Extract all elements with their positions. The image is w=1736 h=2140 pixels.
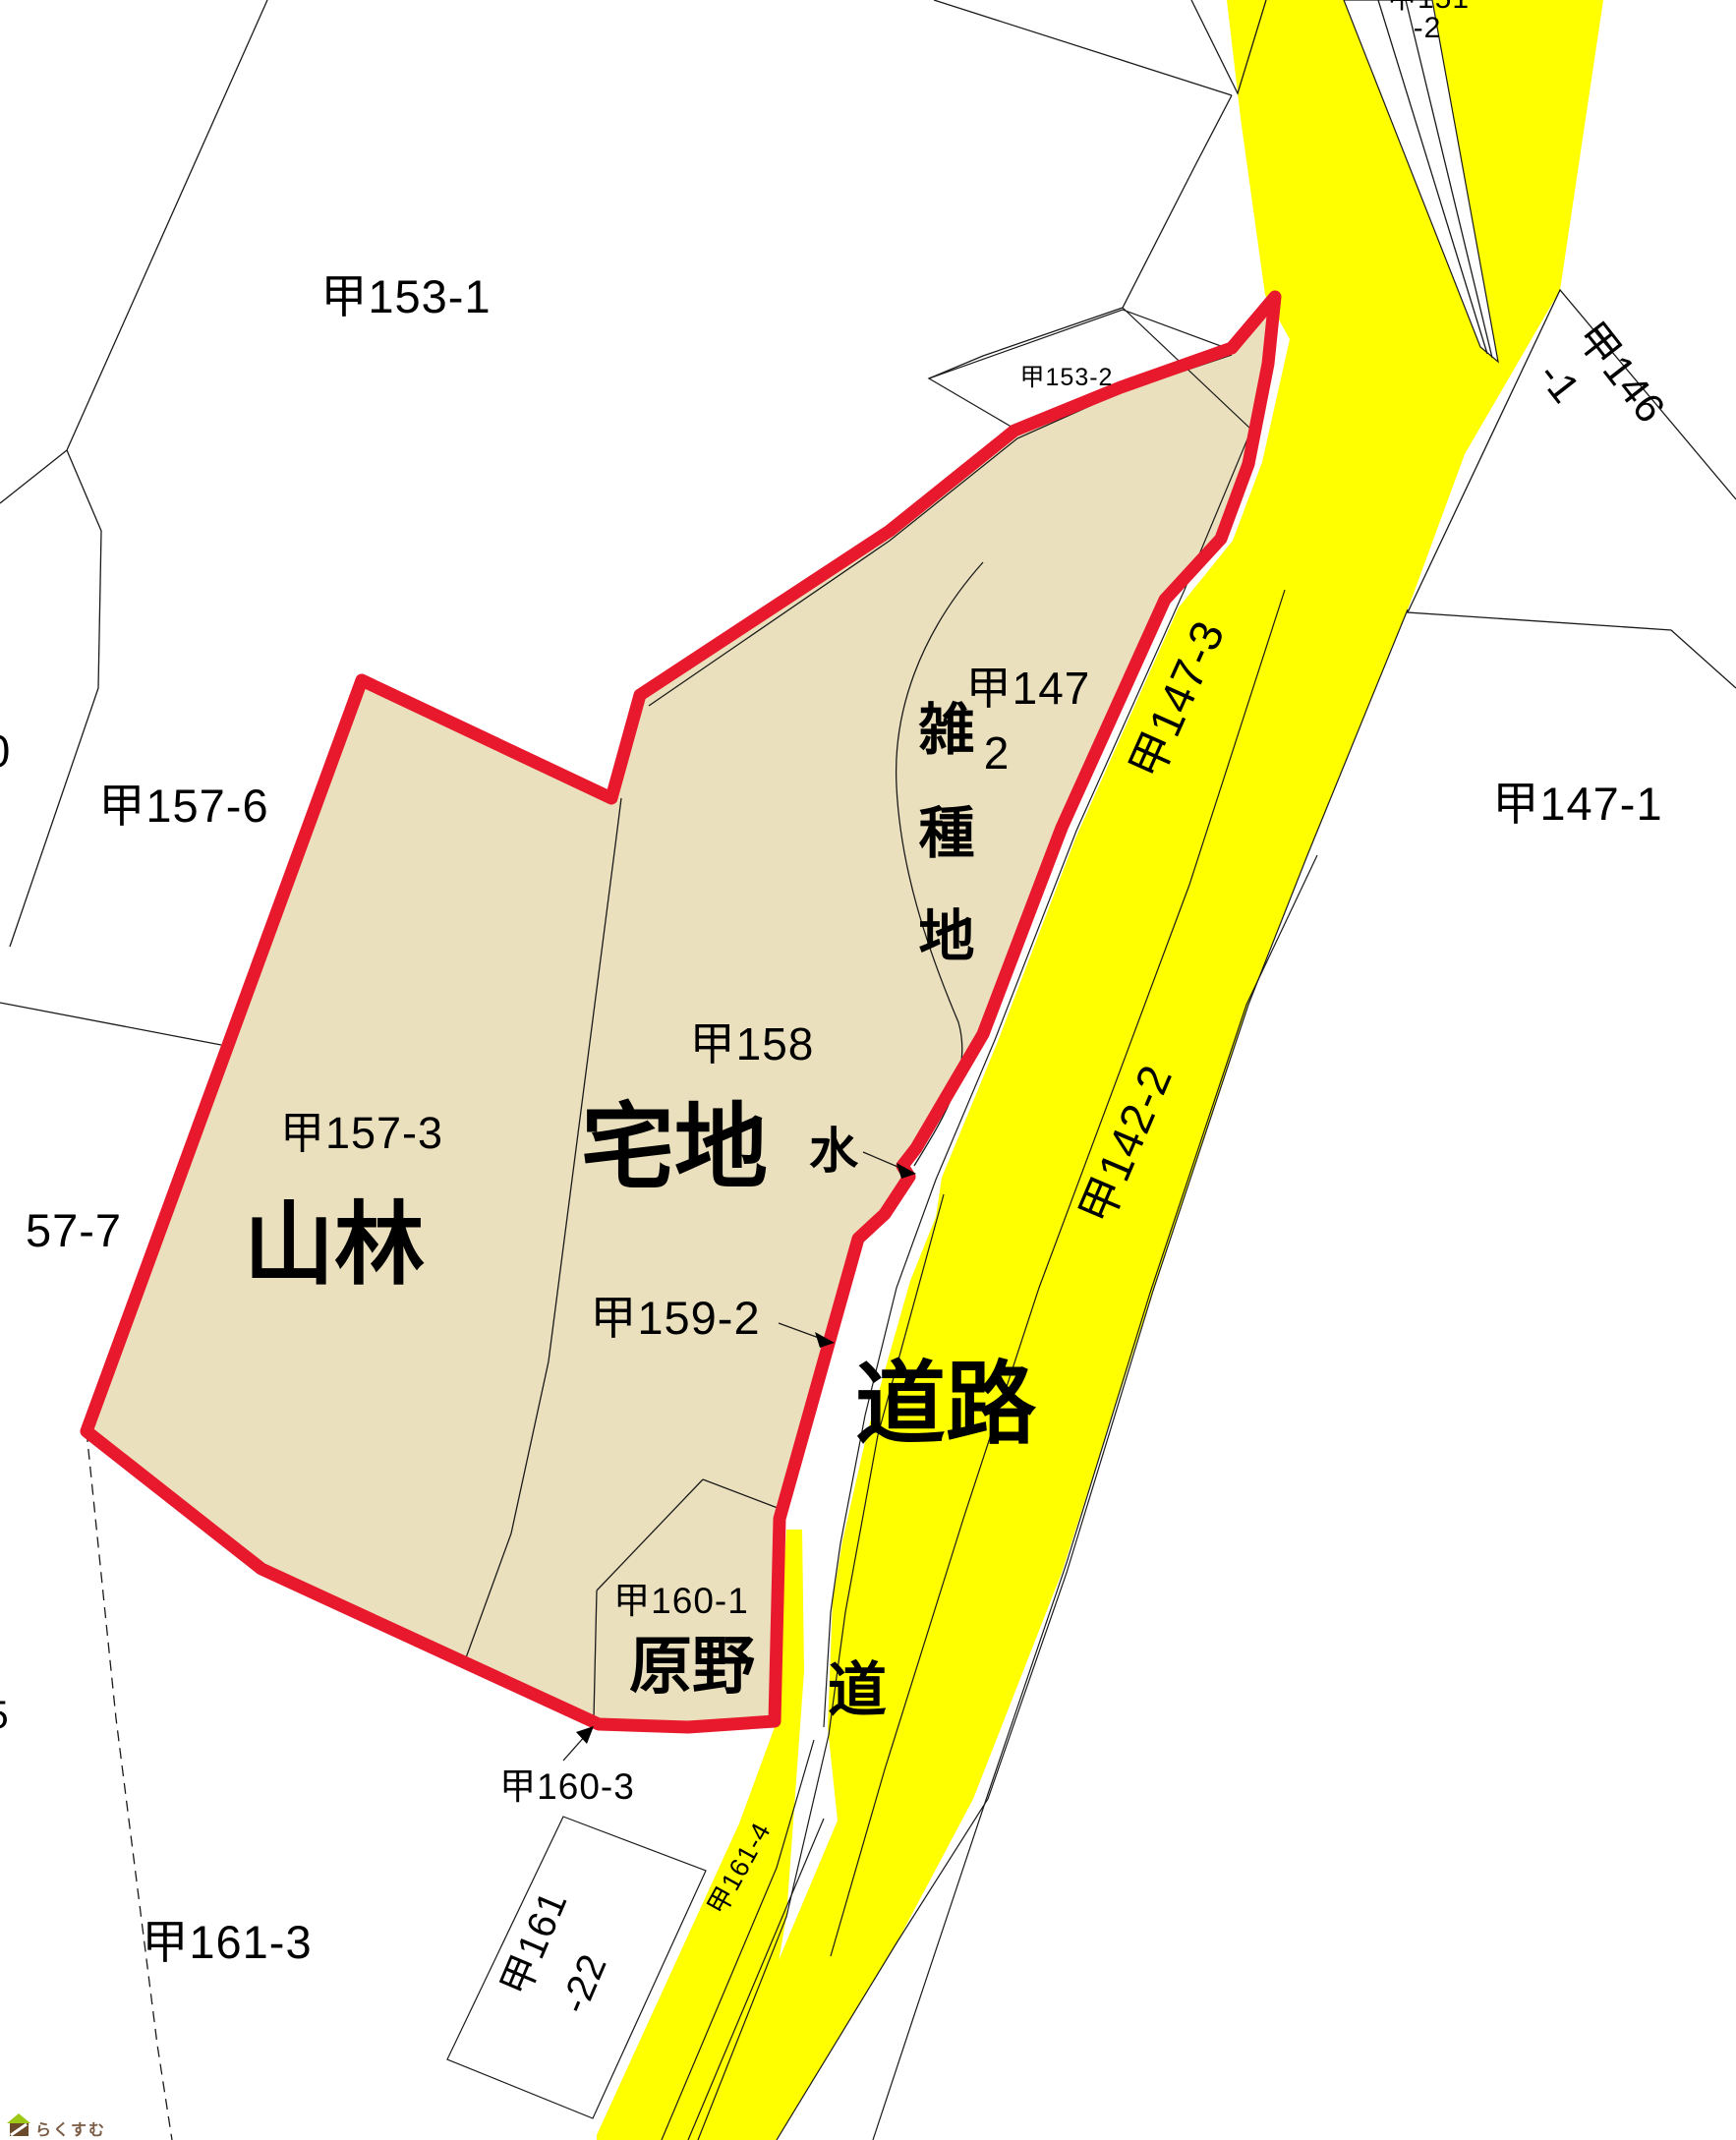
parcel-160-3-arrow [563, 1726, 594, 1761]
boundary-153-1-west [67, 0, 267, 450]
landtype-label-road-small: 道 [828, 1657, 887, 1723]
cadastral-map: 甲153-1 甲153-2 甲151 -2 甲146 -1 甲147-1 甲14… [0, 0, 1736, 2140]
boundary-153-1-northeast [934, 0, 1232, 95]
landtype-label-misc-2: 種 [919, 802, 975, 865]
landtype-label-misc-1: 雑 [918, 699, 975, 762]
cadastral-map-page: 甲153-1 甲153-2 甲151 -2 甲146 -1 甲147-1 甲14… [0, 0, 1736, 2140]
parcel-label-157-7-partial: 57-7 [26, 1204, 122, 1256]
parcel-label-147-2-suffix: 2 [984, 727, 1011, 779]
landtype-label-road-big: 道路 [855, 1355, 1037, 1455]
parcel-label-157-3: 甲157-3 [280, 1108, 443, 1158]
logo-house-roof-icon [7, 2113, 30, 2123]
landtype-label-misc-3: 地 [919, 905, 975, 968]
parcel-label-161-3: 甲161-3 [142, 1916, 312, 1968]
boundary-west-dashed [87, 1431, 172, 2140]
edge-partial-label-top: 0 [0, 725, 11, 777]
boundary-branch-left [0, 450, 67, 503]
landtype-label-wasteland: 原野 [629, 1631, 755, 1702]
parcel-label-160-1: 甲160-1 [613, 1581, 749, 1621]
parcel-label-153-2: 甲153-2 [1020, 364, 1114, 391]
corridor-left-boundary [1123, 95, 1232, 308]
landtype-label-forest: 山林 [244, 1195, 425, 1296]
landtype-label-residential: 宅地 [581, 1096, 768, 1200]
parcel-label-146: 甲146 [1568, 314, 1675, 432]
parcel-label-160-3: 甲160-3 [499, 1766, 635, 1807]
logo-text: らくすむ [35, 2121, 106, 2139]
parcel-label-147-1: 甲147-1 [1492, 778, 1662, 830]
parcel-label-157-6: 甲157-6 [98, 780, 268, 832]
edge-partial-label-bottom: 5 [0, 1694, 10, 1737]
parcel-label-151-suffix: -2 [1414, 12, 1442, 44]
rakusumu-logo: らくすむ [7, 2113, 106, 2139]
parcel-label-146-suffix: -1 [1530, 353, 1590, 412]
parcel-label-147: 甲147 [966, 663, 1091, 714]
landtype-label-water: 水 [809, 1124, 859, 1179]
parcel-label-158: 甲158 [690, 1018, 815, 1070]
parcel-label-153-1: 甲153-1 [320, 270, 491, 322]
boundary-157-6-south [0, 1003, 221, 1045]
parcel-label-159-2: 甲159-2 [590, 1292, 760, 1344]
boundary-157-6-west [10, 450, 101, 947]
